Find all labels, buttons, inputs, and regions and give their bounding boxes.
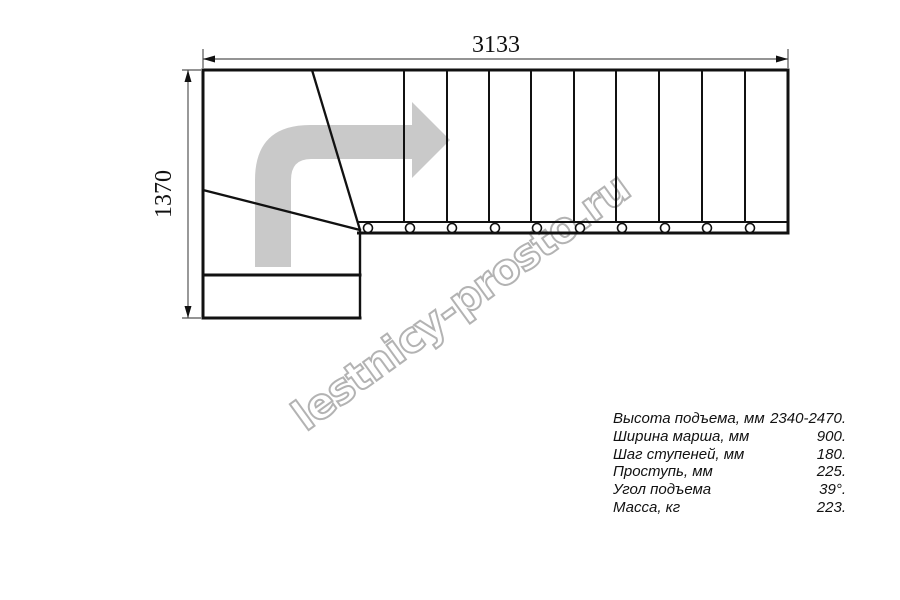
spec-row-width: Ширина марша, мм 900. <box>613 428 846 446</box>
baluster-circle <box>746 224 755 233</box>
spec-value: 39°. <box>819 481 846 499</box>
dim-height-label: 1370 <box>151 170 177 218</box>
dim-width-label: 3133 <box>472 32 520 58</box>
baluster-circle <box>533 224 542 233</box>
spec-value: 223. <box>817 499 846 517</box>
spec-row-height: Высота подъема, мм 2340-2470. <box>613 410 846 428</box>
spec-label: Высота подъема, мм <box>613 410 765 428</box>
dim-arrowhead-right <box>776 56 788 63</box>
spec-row-angle: Угол подъема 39°. <box>613 481 846 499</box>
baluster-circles <box>364 224 755 233</box>
baluster-circle <box>618 224 627 233</box>
spec-row-tread: Проступь, мм 225. <box>613 463 846 481</box>
stringer-band <box>357 222 788 233</box>
spec-value: 180. <box>817 446 846 464</box>
spec-row-mass: Масса, кг 223. <box>613 499 846 517</box>
baluster-circle <box>406 224 415 233</box>
spec-value: 225. <box>817 463 846 481</box>
spec-label: Проступь, мм <box>613 463 713 481</box>
dim-arrowhead-bottom <box>185 306 192 318</box>
baluster-circle <box>703 224 712 233</box>
spec-label: Масса, кг <box>613 499 680 517</box>
spec-row-step: Шаг ступеней, мм 180. <box>613 446 846 464</box>
baluster-circle <box>576 224 585 233</box>
spec-label: Угол подъема <box>613 481 711 499</box>
baluster-circle <box>364 224 373 233</box>
baluster-circle <box>448 224 457 233</box>
spec-label: Ширина марша, мм <box>613 428 749 446</box>
dim-arrowhead-top <box>185 70 192 82</box>
direction-arrow <box>255 102 450 267</box>
spec-value: 900. <box>817 428 846 446</box>
baluster-circle <box>491 224 500 233</box>
stair-plan-page: lestnicy-prosto.ru <box>0 0 900 600</box>
dim-arrowhead-left <box>203 56 215 63</box>
baluster-circle <box>661 224 670 233</box>
spec-value: 2340-2470. <box>770 410 846 428</box>
dimension-height: 1370 <box>151 70 201 318</box>
spec-table: Высота подъема, мм 2340-2470. Ширина мар… <box>613 410 846 517</box>
spec-label: Шаг ступеней, мм <box>613 446 744 464</box>
riser-lines <box>404 70 745 222</box>
dimension-width: 3133 <box>203 32 788 68</box>
